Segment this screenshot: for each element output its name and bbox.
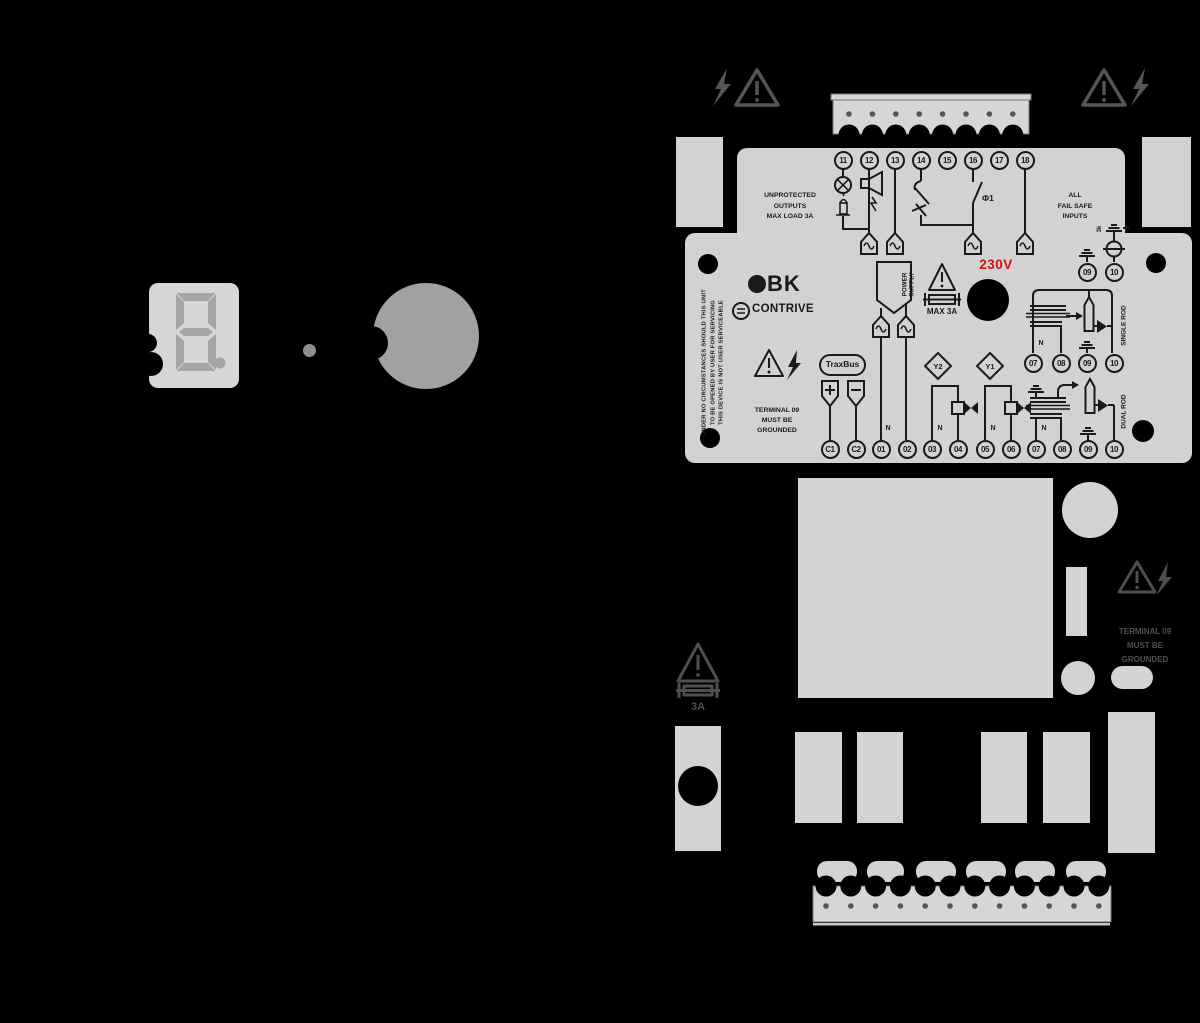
terminal-03: 03 xyxy=(923,440,942,459)
max-current-label: MAX 3A xyxy=(920,307,964,316)
terminal-08-single: 08 xyxy=(1052,354,1071,373)
ground-icon xyxy=(1106,225,1122,231)
terminal-ground-warning-bottom: TERMINAL 09MUST BEGROUNDED xyxy=(1103,597,1187,695)
decimal-point-icon xyxy=(215,358,226,369)
ground-icon xyxy=(1079,342,1095,353)
rod-icon xyxy=(1086,379,1095,413)
spark-gap-rating-label: 3k xyxy=(1096,222,1104,236)
ground-icon xyxy=(1079,250,1095,262)
terminal-01: 01 xyxy=(872,440,891,459)
traxbus-polarity-icons xyxy=(822,381,864,440)
fuse-3a-icon xyxy=(676,644,720,698)
terminal-18: 18 xyxy=(1016,151,1035,170)
plug-connector-bottom xyxy=(813,876,1111,926)
single-rod-label: SINGLE ROD xyxy=(1120,298,1129,352)
terminal-12: 12 xyxy=(860,151,879,170)
seven-segment-digit-icon xyxy=(176,293,226,371)
warning-triangle-icon xyxy=(1119,562,1172,596)
arrow-icon xyxy=(1072,381,1079,389)
horn-icon xyxy=(861,172,882,211)
terminal-04: 04 xyxy=(949,440,968,459)
service-disclaimer: UNDER NO CIRCUMSTANCES SHOULD THIS UNITT… xyxy=(684,263,711,463)
valve-y1-label: Y1 xyxy=(982,362,998,371)
knob-notch-icon xyxy=(354,326,388,360)
plus-icon xyxy=(825,385,835,395)
arrow-icon xyxy=(1076,312,1083,320)
lightning-icon xyxy=(787,350,801,380)
neutral-label: N xyxy=(883,425,893,432)
brand-logo-text: BK xyxy=(767,271,801,297)
terminal-10-surge: 10 xyxy=(1105,263,1124,282)
plug-connector-top xyxy=(831,94,1031,146)
voltage-label: 230V xyxy=(973,257,1019,272)
neutral-label: N xyxy=(988,425,998,432)
company-name: CONTRIVE xyxy=(752,303,814,315)
lamp-icon xyxy=(835,177,851,193)
lightning-icon xyxy=(1156,562,1172,596)
ground-icon xyxy=(1028,386,1044,398)
ac-connector-icon xyxy=(861,233,1033,254)
arrow-icon xyxy=(1097,320,1107,333)
terminal-15: 15 xyxy=(938,151,957,170)
dual-rod-label: DUAL ROD xyxy=(1120,390,1129,434)
display-notch-icon xyxy=(139,352,163,376)
lightning-icon xyxy=(713,68,731,106)
terminal-10-single: 10 xyxy=(1105,354,1124,373)
terminal-16: 16 xyxy=(964,151,983,170)
terminal-09: 09 xyxy=(1079,440,1098,459)
phase-label: Φ1 xyxy=(979,193,997,203)
wiring-diagram-page: 11 12 13 14 15 16 17 18 C1 C2 01 02 03 0… xyxy=(0,0,1200,1023)
terminal-07: 07 xyxy=(1027,440,1046,459)
sensor-contact-icon xyxy=(912,181,929,216)
lightning-icon xyxy=(1131,68,1149,106)
plus-icon xyxy=(1123,225,1129,231)
terminal-09-single: 09 xyxy=(1078,354,1097,373)
terminal-13: 13 xyxy=(886,151,905,170)
terminal-07-single: 07 xyxy=(1024,354,1043,373)
warning-triangle-icon xyxy=(755,350,801,380)
terminal-11: 11 xyxy=(834,151,853,170)
terminal-10: 10 xyxy=(1105,440,1124,459)
buzzer-hole-icon xyxy=(967,279,1009,321)
ground-icon xyxy=(1080,428,1096,440)
bk-logo-dot-icon xyxy=(748,275,766,293)
valve-y2-label: Y2 xyxy=(930,362,946,371)
neutral-label: N xyxy=(935,425,945,432)
terminal-06: 06 xyxy=(1002,440,1021,459)
transformer-icon xyxy=(1030,398,1066,440)
terminal-05: 05 xyxy=(976,440,995,459)
neutral-label: N xyxy=(1039,425,1049,432)
neutral-label: N xyxy=(1036,340,1046,347)
arrow-icon xyxy=(1098,399,1108,412)
terminal-09-surge: 09 xyxy=(1078,263,1097,282)
rod-icon xyxy=(1085,297,1094,331)
warning-triangle-icon xyxy=(736,70,778,105)
terminal-02: 02 xyxy=(898,440,917,459)
terminal-08: 08 xyxy=(1053,440,1072,459)
beacon-icon xyxy=(836,193,850,215)
terminal-ground-warning-panel: TERMINAL 09MUST BEGROUNDED xyxy=(745,386,809,456)
terminal-c2: C2 xyxy=(847,440,866,459)
terminal-17: 17 xyxy=(990,151,1009,170)
display-notch-icon xyxy=(139,334,157,352)
traxbus-badge: TraxBus xyxy=(819,354,866,376)
unprotected-outputs-label: UNPROTECTEDOUTPUTSMAX LOAD 3A xyxy=(758,170,822,244)
fuse-holder-hole-icon xyxy=(678,766,718,806)
power-supply-label: POWERSUPPLY xyxy=(887,261,902,309)
terminal-14: 14 xyxy=(912,151,931,170)
warning-triangle-icon xyxy=(1083,70,1125,105)
terminal-c1: C1 xyxy=(821,440,840,459)
fuse-rating-label: 3A xyxy=(685,701,711,713)
